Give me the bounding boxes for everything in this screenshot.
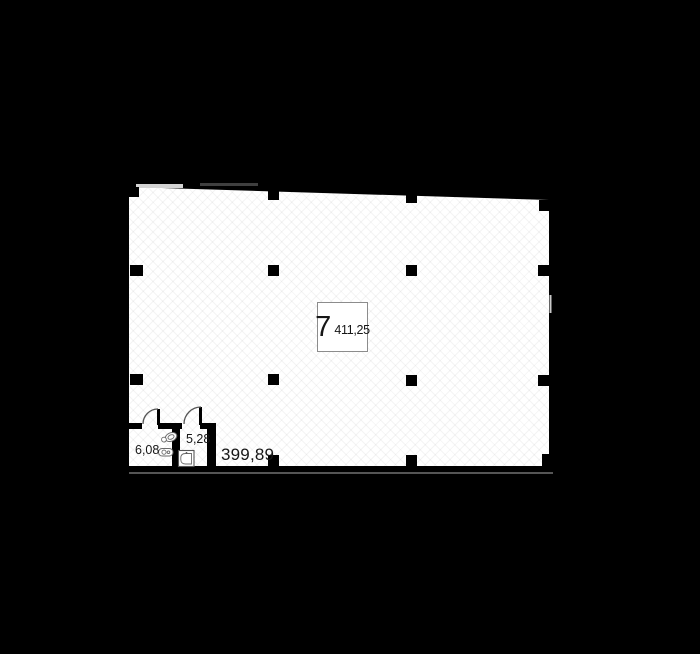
floor-plan-canvas: 7 411,25 399,89 6,08 5,28 [0,0,700,654]
washbasin-icon [179,451,195,467]
door-swing-left-icon [143,409,158,424]
door-swing-right-icon [184,407,201,424]
room-area-label-left: 6,08 [135,443,159,457]
sink-icon [159,449,174,457]
toilet-icon [160,431,178,445]
unit-number: 7 [315,313,330,342]
unit-label-box[interactable]: 7 411,25 [317,302,368,352]
unit-area: 411,25 [334,323,370,337]
main-room-area-label: 399,89 [221,445,274,465]
room-area-label-right: 5,28 [186,432,210,446]
